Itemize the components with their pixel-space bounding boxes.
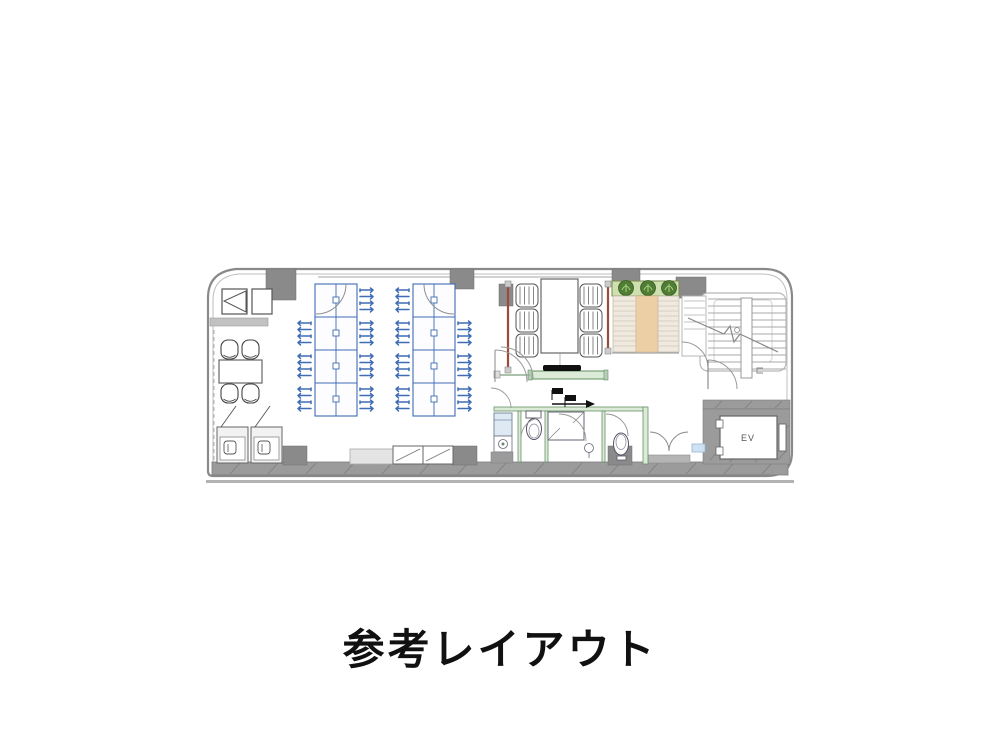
nook-table bbox=[219, 360, 262, 383]
page-title: 参考レイアウト bbox=[0, 616, 1000, 677]
toilet-icon bbox=[526, 411, 542, 440]
booth-seat-icon bbox=[224, 441, 236, 454]
chair-icon bbox=[242, 384, 259, 403]
bench-lounge bbox=[612, 281, 679, 354]
stair-rail bbox=[741, 298, 752, 378]
meeting-table bbox=[541, 279, 578, 353]
booth-seat-icon bbox=[258, 441, 270, 454]
storage-lockers bbox=[350, 446, 453, 464]
entrance-box bbox=[252, 289, 272, 314]
elevator: EV bbox=[703, 409, 790, 464]
chair-icon bbox=[242, 340, 259, 359]
page: EV bbox=[0, 0, 1000, 750]
chair-icon bbox=[221, 340, 238, 359]
bench-seat bbox=[636, 296, 658, 352]
elevator-label: EV bbox=[741, 433, 755, 443]
site-line bbox=[206, 480, 794, 483]
desk-island bbox=[315, 284, 357, 416]
display-monitor-icon bbox=[543, 365, 581, 371]
entry-mat bbox=[692, 444, 705, 452]
sink-icon bbox=[494, 413, 512, 452]
credenza-counter bbox=[530, 371, 606, 379]
desk-island bbox=[413, 284, 455, 416]
chair-icon bbox=[221, 384, 238, 403]
